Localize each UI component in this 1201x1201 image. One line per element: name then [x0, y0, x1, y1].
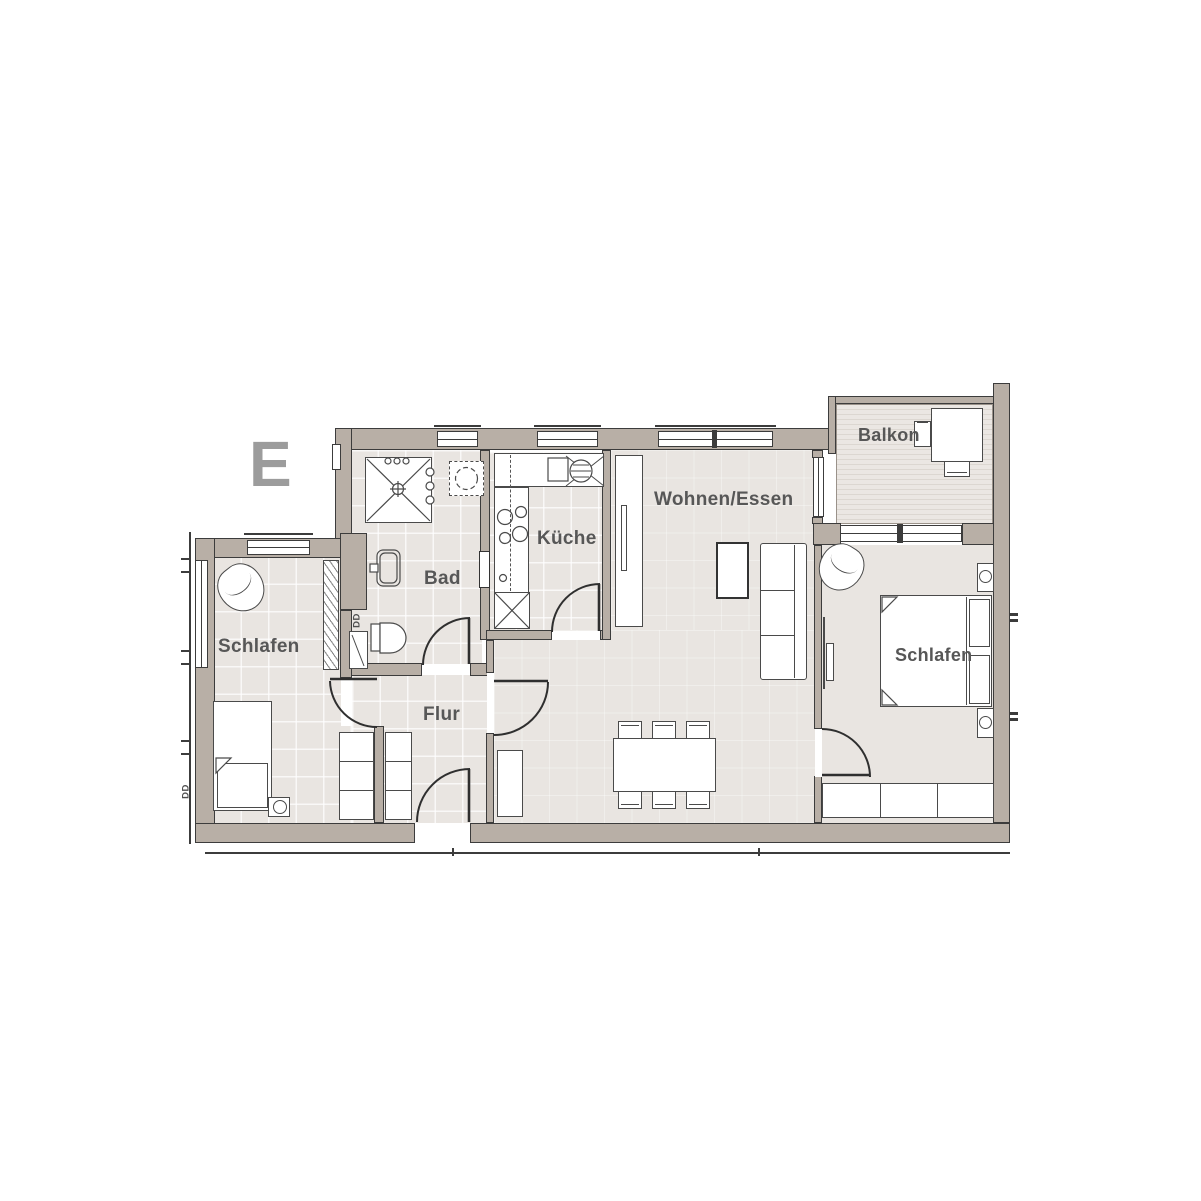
- sofa-cushion-line: [761, 590, 794, 591]
- counter-dashed-line: [510, 455, 511, 591]
- bed-pillow: [969, 599, 990, 647]
- balcony-table: [931, 408, 983, 462]
- washing-machine: [449, 461, 484, 496]
- shaft-label: DD: [181, 781, 192, 803]
- window-sill: [434, 425, 481, 427]
- wall-flur-wohnen-lower: [486, 733, 494, 823]
- dining-chair: [618, 721, 642, 739]
- dining-chair: [618, 791, 642, 809]
- hall-cabinet: [497, 750, 523, 817]
- window-sill: [534, 425, 601, 427]
- tick: [181, 558, 190, 560]
- single-bed-duvet: [217, 763, 268, 808]
- hall-wardrobe-east: [385, 732, 412, 820]
- door-opening-kueche: [552, 631, 600, 640]
- room-label-flur: Flur: [423, 704, 460, 726]
- tick: [181, 650, 190, 652]
- sideboard-divider: [880, 784, 881, 817]
- floor-plan-canvas: E Schlafen Bad Küche Flur Wohnen/Essen B…: [0, 0, 1201, 1201]
- window-mullion: [712, 430, 717, 448]
- room-label-schlafen-ost: Schlafen: [895, 645, 972, 666]
- balcony-chair: [944, 461, 970, 477]
- wall-niche: [479, 551, 490, 588]
- room-label-wohnen-essen: Wohnen/Essen: [654, 489, 793, 511]
- sideboard-divider: [937, 784, 938, 817]
- wall-schlafen-west-lower: [374, 726, 384, 823]
- tick: [452, 848, 454, 856]
- dining-chair: [686, 791, 710, 809]
- shaft-radiator: [349, 631, 368, 669]
- dining-table: [613, 738, 716, 792]
- window-mullion: [897, 524, 903, 543]
- wall-wohnen-schlafen-lower: [814, 776, 822, 823]
- wall-kueche-bottom-left: [486, 630, 552, 640]
- window-sill: [244, 533, 313, 535]
- balcony-door: [813, 457, 824, 517]
- tick: [1010, 712, 1018, 715]
- room-label-balkon: Balkon: [858, 425, 920, 446]
- tall-cabinet: [615, 455, 643, 627]
- shaft-label: DD: [352, 610, 363, 632]
- room-label-bad: Bad: [424, 568, 461, 590]
- wall-shaft-block: [340, 533, 367, 610]
- tick: [1010, 619, 1018, 622]
- window-sill: [655, 425, 776, 427]
- lamp-icon: [273, 800, 287, 814]
- tall-cabinet-handle: [621, 505, 627, 571]
- window-kueche: [537, 431, 598, 447]
- tick: [1010, 718, 1018, 721]
- tick: [181, 753, 190, 755]
- wall-right-exterior: [993, 383, 1010, 823]
- wall-notch-top-left: [332, 444, 341, 470]
- sofa-cushion-line: [761, 635, 794, 636]
- window-left-wall: [195, 560, 208, 668]
- dining-chair: [652, 791, 676, 809]
- door-opening-schlafen-west: [341, 679, 352, 726]
- coffee-table: [716, 542, 749, 599]
- door-opening-bad: [422, 664, 470, 675]
- wardrobe-schlafen-west: [323, 560, 339, 670]
- lamp-icon: [979, 570, 992, 583]
- tick: [181, 571, 190, 573]
- lower-structure-line: [205, 852, 1010, 854]
- balcony-door-cap-bottom: [812, 517, 823, 524]
- tick: [1010, 613, 1018, 616]
- dining-chair: [652, 721, 676, 739]
- wall-bottom-right: [470, 823, 1010, 843]
- wall-flur-wohnen-upper: [486, 640, 494, 673]
- tv: [826, 643, 834, 681]
- window-bad: [437, 431, 478, 447]
- kitchen-counter-left: [494, 487, 529, 593]
- lamp-icon: [979, 716, 992, 729]
- unit-mark: E: [249, 432, 292, 496]
- dining-chair: [686, 721, 710, 739]
- wall-schlafen-ost-top-pier-right: [962, 523, 994, 545]
- wall-bottom-left: [195, 823, 415, 843]
- tick: [181, 663, 190, 665]
- balcony-parapet-top: [828, 396, 994, 404]
- room-label-kueche: Küche: [537, 528, 597, 550]
- sofa: [760, 543, 807, 680]
- fridge: [494, 592, 530, 629]
- shower: [365, 457, 432, 523]
- shelf-line: [340, 761, 373, 762]
- shelf-line: [386, 790, 411, 791]
- tick: [181, 740, 190, 742]
- shelf-line: [340, 790, 373, 791]
- sofa-back-line: [794, 545, 795, 678]
- door-opening-wohnen: [487, 673, 494, 733]
- door-opening-entrance: [415, 823, 470, 843]
- shelf-line: [386, 761, 411, 762]
- tick: [758, 848, 760, 856]
- hall-wardrobe-west: [339, 732, 374, 820]
- sideboard: [822, 783, 994, 818]
- door-opening-schlafen-ost: [815, 729, 822, 777]
- window-schlafen-west: [247, 540, 310, 555]
- room-label-schlafen-west: Schlafen: [218, 636, 300, 658]
- balcony-parapet-left: [828, 396, 836, 454]
